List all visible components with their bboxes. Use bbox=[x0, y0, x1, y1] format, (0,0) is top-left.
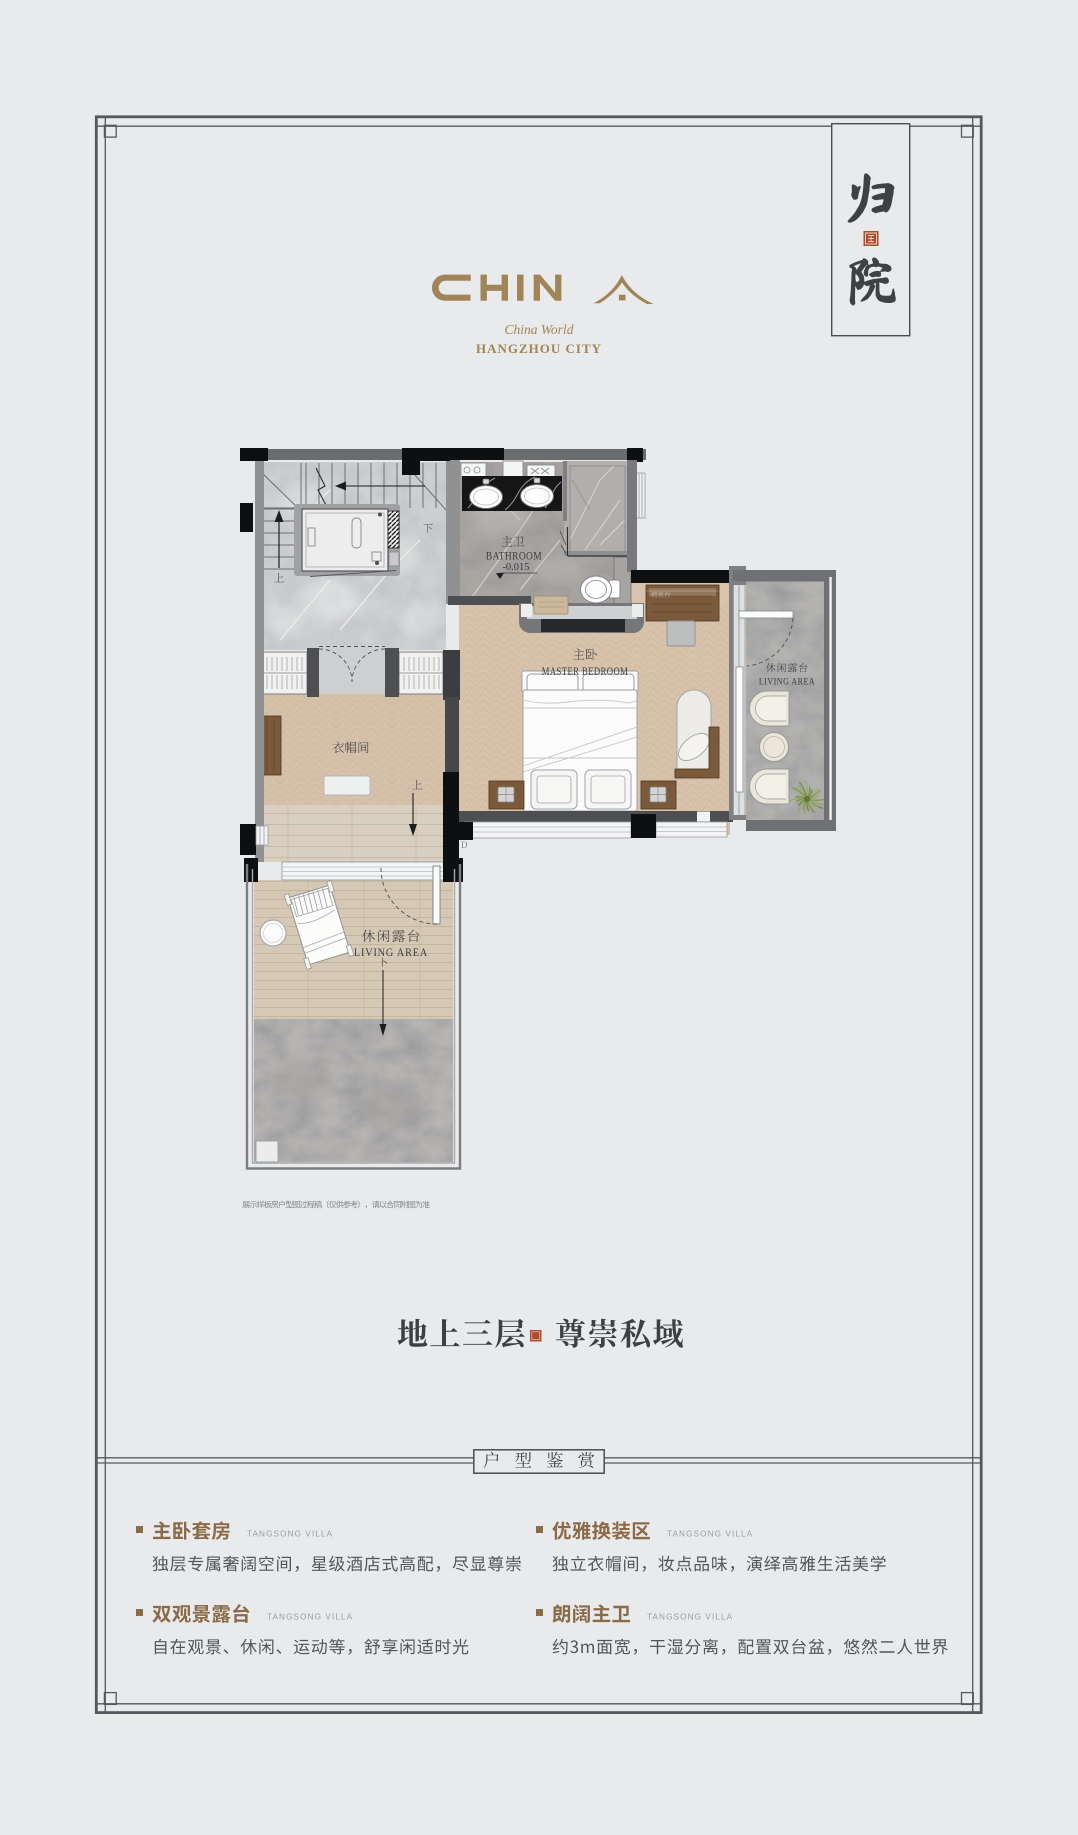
svg-text:LIVING AREA: LIVING AREA bbox=[354, 946, 428, 959]
svg-text:TANGSONG VILLA: TANGSONG VILLA bbox=[667, 1530, 753, 1539]
svg-text:TANGSONG VILLA: TANGSONG VILLA bbox=[267, 1613, 353, 1622]
svg-text:TANGSONG VILLA: TANGSONG VILLA bbox=[247, 1530, 333, 1539]
svg-text:TANGSONG VILLA: TANGSONG VILLA bbox=[647, 1613, 733, 1622]
svg-text:LIVING AREA: LIVING AREA bbox=[759, 676, 815, 687]
svg-text:BATHROOM: BATHROOM bbox=[486, 551, 542, 563]
svg-text:D: D bbox=[461, 840, 468, 850]
svg-text:-0.015: -0.015 bbox=[502, 562, 529, 573]
svg-text:MASTER BEDROOM: MASTER BEDROOM bbox=[542, 666, 629, 678]
